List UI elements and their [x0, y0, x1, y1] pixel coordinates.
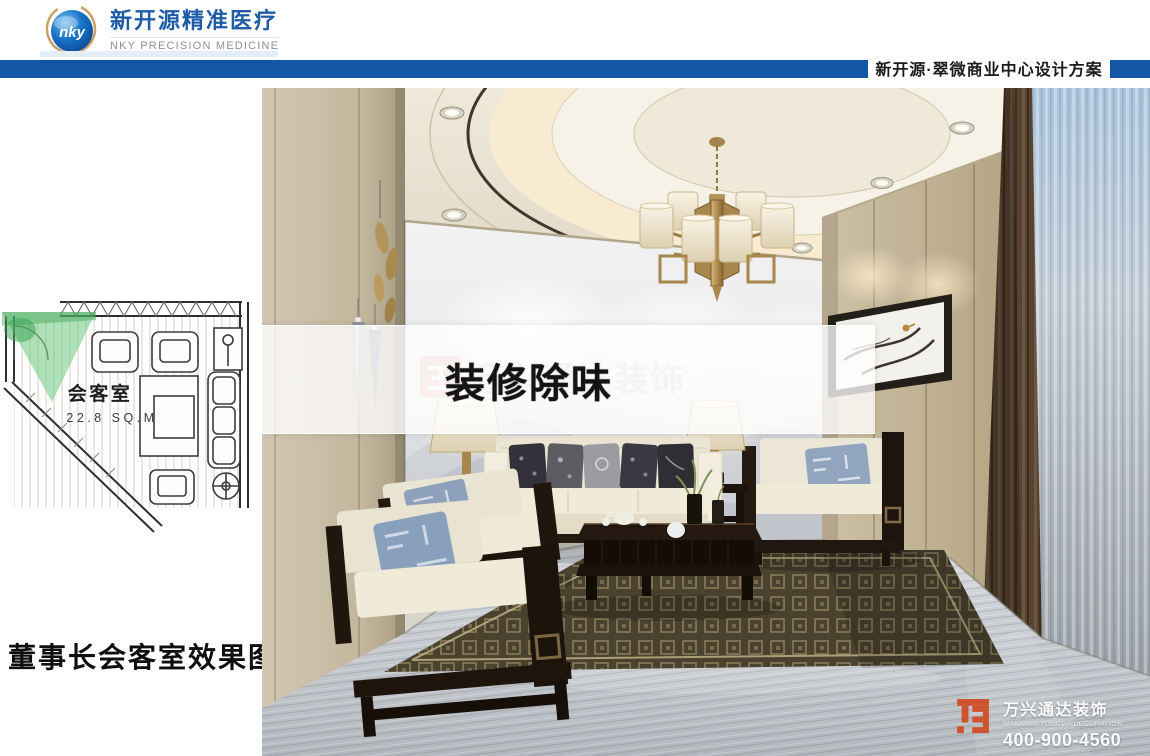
floor-plan: 会客室 22.8 SQ.M: [2, 296, 256, 540]
page-caption: 董事长会客室效果图: [8, 636, 278, 676]
watermark-company-name: 万兴通达装饰: [1003, 696, 1123, 720]
brand-name-cn: 新开源精准医疗: [110, 8, 279, 33]
plan-area-label: 22.8 SQ.M: [66, 411, 157, 425]
logo-underline-strip: [40, 51, 278, 57]
title-bar-left-segment: [0, 60, 868, 78]
title-bar-right-segment: [1110, 60, 1150, 78]
logo-text: nky: [59, 24, 86, 41]
armchair-right: [732, 432, 922, 572]
overlay-banner: 装修除味: [262, 325, 875, 434]
nky-globe-icon: nky: [44, 3, 98, 57]
rendering-photo: 万兴通达装饰 装修除味 万兴通达装饰 WANXING TONGDA DECORA…: [262, 88, 1150, 756]
brand-name-en: NKY PRECISION MEDICINE: [110, 37, 279, 52]
banner-text: 装修除味: [445, 351, 613, 409]
title-bar: 新开源·翠微商业中心设计方案: [0, 60, 1150, 78]
sheer-curtain: [1024, 88, 1150, 680]
decoration-company-logo-icon: [950, 696, 996, 740]
project-title: 新开源·翠微商业中心设计方案: [870, 53, 1108, 83]
brand-text: 新开源精准医疗 NKY PRECISION MEDICINE: [110, 8, 279, 51]
plan-room-label: 会客室: [68, 382, 133, 405]
watermark-phone: 400-900-4560: [1003, 730, 1123, 751]
corner-watermark: 万兴通达装饰 WANXING TONGDA DECORATION 400-900…: [950, 696, 1123, 751]
watermark-company-name-en: WANXING TONGDA DECORATION: [1003, 721, 1123, 728]
header: nky 新开源精准医疗 NKY PRECISION MEDICINE: [44, 3, 279, 57]
floor-plan-drawing: 会客室 22.8 SQ.M: [2, 296, 256, 536]
